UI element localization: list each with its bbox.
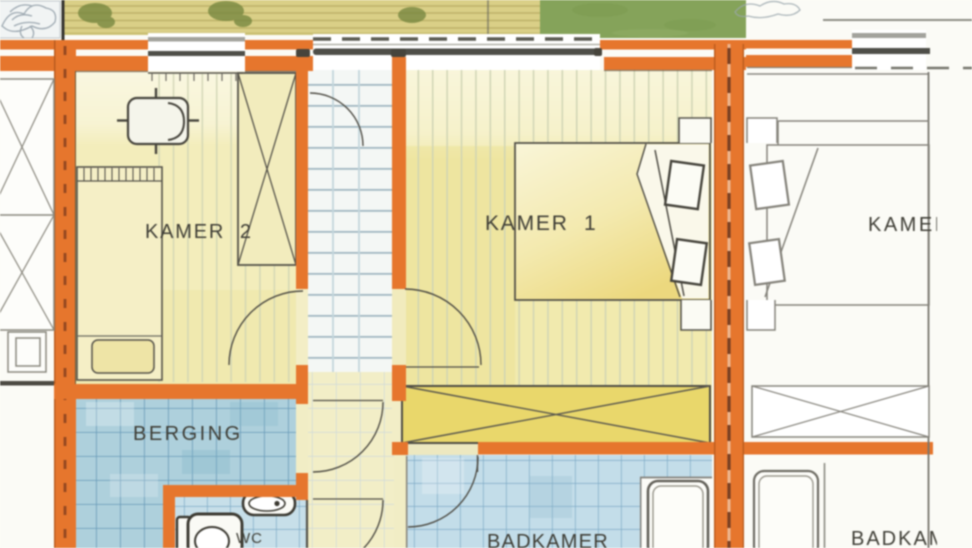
svg-text:KAMER 2: KAMER 2: [145, 221, 253, 243]
svg-text:BADKAMER: BADKAMER: [487, 531, 609, 548]
svg-text:BADKAM: BADKAM: [851, 528, 947, 548]
svg-text:WC: WC: [236, 530, 263, 547]
svg-text:KAMER 1: KAMER 1: [485, 212, 597, 235]
svg-text:BERGING: BERGING: [133, 423, 243, 445]
